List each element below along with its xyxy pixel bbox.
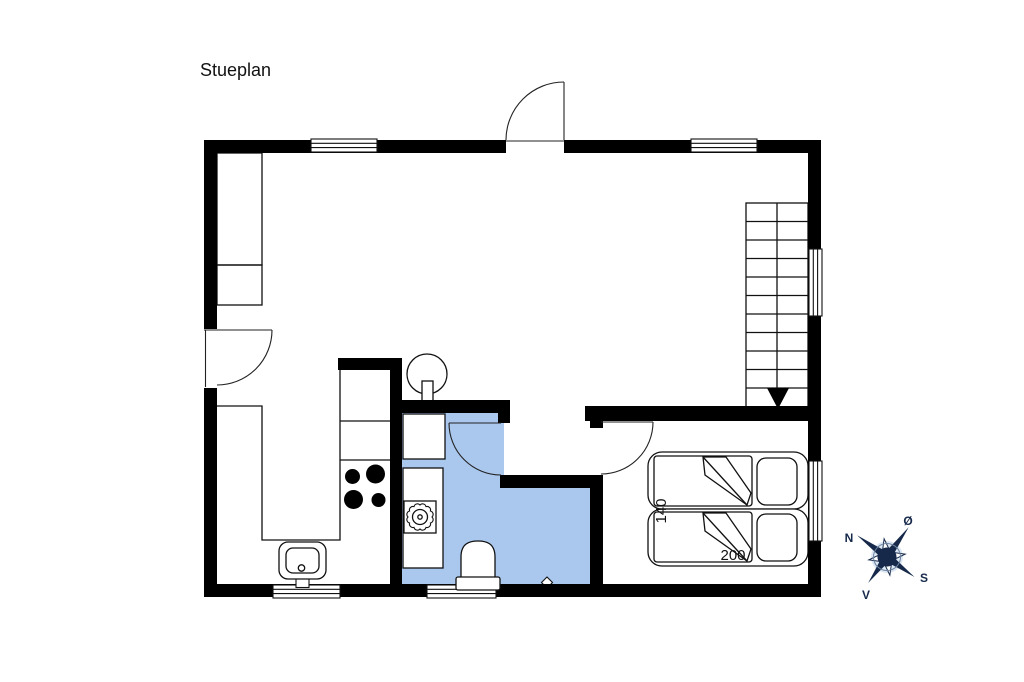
double-bed: 140 200 xyxy=(648,452,808,566)
toilet xyxy=(456,541,500,590)
page-title: Stueplan xyxy=(200,60,271,80)
wall-kitchen-bath xyxy=(390,358,402,584)
wall-bedroom-north xyxy=(585,406,821,421)
toilet-bowl xyxy=(461,541,495,578)
wall-bath-door-jamb xyxy=(498,400,510,423)
washer-drum-icon xyxy=(407,504,433,530)
bed-width-label: 140 xyxy=(653,498,670,523)
wall-hall-south xyxy=(500,475,603,488)
stairs-down xyxy=(746,203,808,409)
window-east-stairs xyxy=(809,249,822,316)
floorplan-drawing: Stueplan xyxy=(0,0,1024,682)
window-north-left xyxy=(311,139,377,152)
compass-east-label: Ø xyxy=(903,514,912,528)
window-east-bedroom xyxy=(809,461,822,541)
compass-north-label: N xyxy=(845,531,854,545)
bed-length-label: 200 xyxy=(720,547,745,564)
floorplan-page: Stueplan xyxy=(0,0,1024,682)
window-north-right xyxy=(691,139,757,152)
compass-west-label: V xyxy=(862,588,870,602)
bathroom-cabinet xyxy=(403,414,445,459)
sink-tap xyxy=(296,579,309,588)
wood-stove-flue xyxy=(422,381,433,401)
compass-south-label: S xyxy=(920,571,928,585)
toilet-tank xyxy=(456,577,500,590)
wall-bedroom-west-jamb xyxy=(590,406,603,428)
wall-bath-north xyxy=(402,400,510,413)
wall-bedroom-west xyxy=(590,475,603,584)
